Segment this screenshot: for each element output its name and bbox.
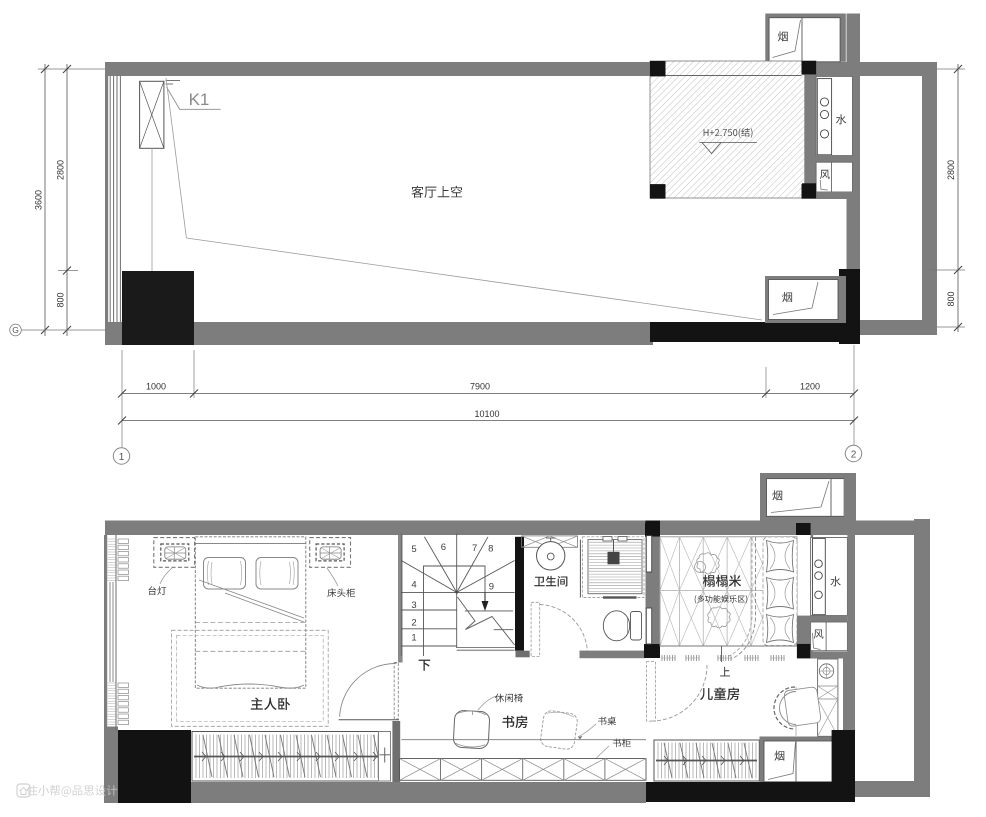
svg-text:G: G — [12, 325, 19, 335]
svg-text:K1: K1 — [189, 90, 210, 109]
svg-text:3600: 3600 — [34, 190, 44, 210]
svg-text:2: 2 — [411, 618, 416, 629]
svg-text:2: 2 — [851, 450, 857, 461]
svg-text:5: 5 — [411, 544, 416, 555]
svg-text:1000: 1000 — [146, 382, 166, 392]
svg-text:4: 4 — [411, 580, 416, 591]
svg-text:8: 8 — [488, 544, 493, 555]
svg-text:1: 1 — [411, 633, 416, 644]
svg-text:1200: 1200 — [800, 382, 820, 392]
svg-text:7: 7 — [472, 543, 477, 554]
svg-text:7900: 7900 — [470, 382, 490, 392]
svg-text:10100: 10100 — [474, 409, 499, 419]
svg-text:6: 6 — [441, 542, 446, 553]
svg-text:1: 1 — [119, 452, 125, 463]
svg-text:800: 800 — [946, 291, 956, 306]
svg-text:2800: 2800 — [946, 160, 956, 180]
svg-text:3: 3 — [411, 600, 416, 611]
svg-text:2800: 2800 — [56, 160, 66, 180]
svg-text:800: 800 — [56, 292, 66, 307]
svg-text:9: 9 — [489, 582, 494, 593]
